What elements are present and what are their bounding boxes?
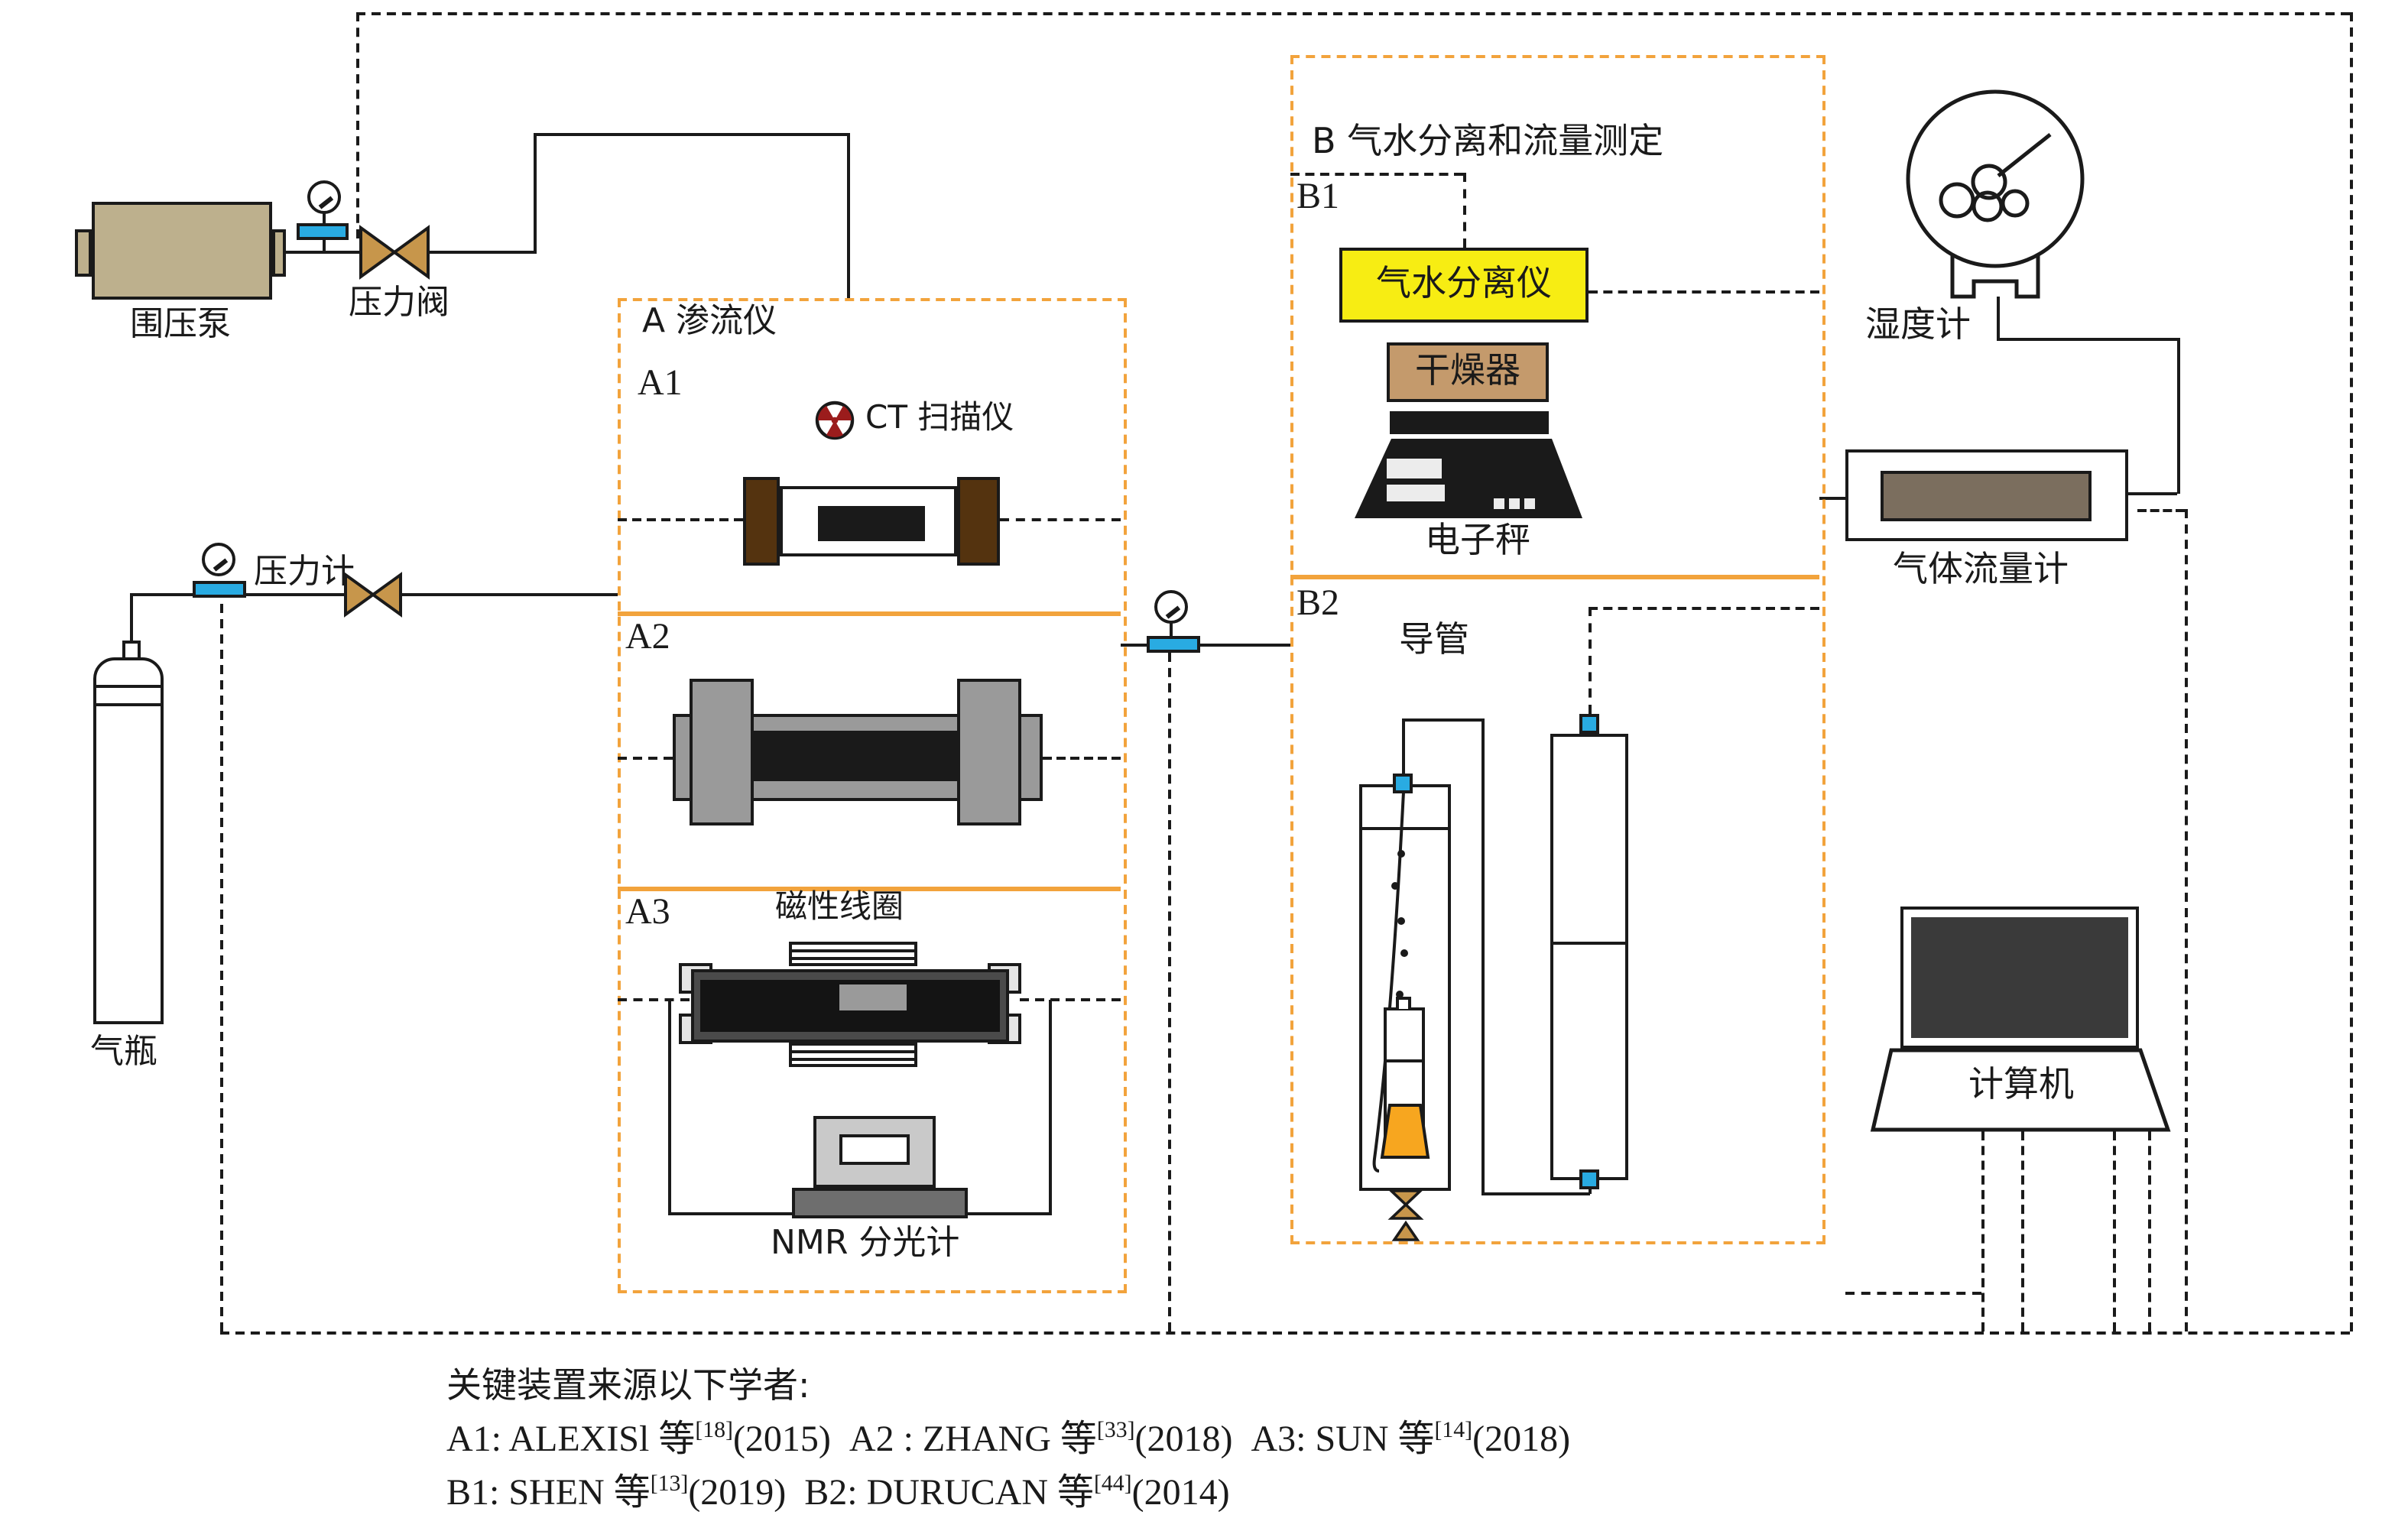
gauge-base <box>1147 636 1200 653</box>
confining-pump <box>92 202 272 300</box>
bus-spur-flowmeter <box>2185 509 2188 1331</box>
box-a-divider-1 <box>618 611 1121 615</box>
label-pressure-gauge: 压力计 <box>254 553 355 592</box>
label-a1: A1 <box>638 364 683 406</box>
pressure-gauge-icon <box>307 180 341 214</box>
drain-valve-icon <box>1388 1189 1423 1241</box>
pipe-hygro-drop <box>2177 338 2180 494</box>
a2-core-sample <box>754 731 957 781</box>
a1-centerline <box>618 518 743 521</box>
pressure-gauge-icon <box>202 543 235 576</box>
bubble <box>1391 882 1399 890</box>
a1-core-holder-cap <box>957 477 1000 566</box>
vessel-fitting <box>1579 1169 1599 1189</box>
right-vessel-level-line <box>1553 942 1625 945</box>
a3-centerline <box>1020 998 1121 1001</box>
cylinder-collar-line <box>96 703 164 706</box>
label-flow-meter: 气体流量计 <box>1893 550 2069 591</box>
label-a3: A3 <box>625 893 670 935</box>
confining-pump-tab <box>75 229 92 277</box>
credits-title: 关键装置来源以下学者: <box>446 1367 810 1407</box>
label-computer: 计算机 <box>1929 1066 2113 1106</box>
vessel-fitting <box>1393 774 1413 793</box>
computer-signal-line <box>2021 1131 2024 1331</box>
inner-collector-notch <box>1396 997 1411 1009</box>
confining-pump-tab <box>272 229 286 277</box>
a1-core-holder-cap <box>743 477 780 566</box>
label-ct-scanner: CT 扫描仪 <box>865 399 1014 436</box>
separator-box: 气水分离仪 <box>1339 248 1589 323</box>
label-a2: A2 <box>625 618 670 660</box>
funnel-icon <box>1381 1104 1430 1159</box>
bubble <box>1397 917 1405 925</box>
electronic-scale-icon <box>1353 437 1584 520</box>
a3-sample <box>839 984 907 1010</box>
label-b2: B2 <box>1296 584 1339 626</box>
gauge-base <box>297 223 349 240</box>
pipe-hygro-right <box>1997 338 2177 341</box>
right-vessel <box>1550 734 1628 1180</box>
label-magnetic-coil: 磁性线圈 <box>775 888 904 925</box>
valve-icon <box>359 226 430 278</box>
vessel-signal-line-h <box>1589 607 1819 610</box>
a3-coil-bottom <box>789 1043 917 1067</box>
scale-top-bar <box>1390 411 1549 434</box>
bus-spur-flowmeter-h <box>2137 509 2185 512</box>
gauge-stem <box>1170 622 1173 636</box>
pipe-pump-up <box>534 133 537 254</box>
pressure-gauge-icon <box>1154 590 1188 624</box>
gauge-stem <box>323 212 326 223</box>
bus-left <box>220 604 223 1331</box>
a3-coil-line <box>792 1058 914 1060</box>
b1-outline-right <box>1463 173 1466 248</box>
computer-signal-line-h <box>1845 1292 1981 1295</box>
a2-end-plate <box>957 679 1021 825</box>
inner-collector-line <box>1387 1059 1422 1062</box>
a3-coil-top <box>789 942 917 966</box>
radiation-icon <box>815 401 855 440</box>
bubble <box>1397 850 1405 858</box>
gauge-base <box>193 581 246 598</box>
bus-right <box>2350 12 2353 1331</box>
gas-cylinder <box>93 657 164 1024</box>
valve-icon <box>344 573 402 616</box>
label-hygrometer: 湿度计 <box>1865 306 1971 346</box>
pipe-cylinder-riser <box>130 595 133 641</box>
separator-signal-line <box>1589 290 1819 294</box>
a1-core-sample <box>818 506 925 541</box>
vessel-fitting <box>1579 714 1599 734</box>
a2-end-plate <box>690 679 754 825</box>
gas-flow-meter-display <box>1881 471 2092 521</box>
bus-spur-midgauge <box>1168 653 1171 1331</box>
a2-centerline <box>618 757 673 760</box>
computer-signal-line <box>2113 1131 2116 1331</box>
label-pressure-valve: 压力阀 <box>349 284 449 323</box>
a1-centerline <box>1000 518 1121 521</box>
bus-top <box>356 12 2350 15</box>
pipe-into-boxA <box>847 133 850 298</box>
computer-signal-line <box>1981 1131 1984 1331</box>
b1-outline-top <box>1290 173 1463 176</box>
box-b-title: B 气水分离和流量测定 <box>1312 122 1663 163</box>
credits-line: B1: SHEN 等[13](2019) B2: DURUCAN 等[44](2… <box>446 1472 1230 1516</box>
label-nmr: NMR 分光计 <box>771 1224 959 1263</box>
pipe-hygro-down <box>1997 297 2000 338</box>
nmr-monitor-window <box>839 1134 910 1165</box>
nmr-base <box>792 1188 968 1218</box>
label-pump: 围压泵 <box>130 306 231 345</box>
a3-coil-line <box>792 957 914 959</box>
dryer-box: 干燥器 <box>1387 342 1549 402</box>
computer-signal-line <box>2148 1131 2151 1331</box>
label-cylinder: 气瓶 <box>90 1033 157 1072</box>
cylinder-collar-line <box>96 685 164 688</box>
bus-spur-valve <box>356 12 359 238</box>
a2-centerline <box>1043 757 1121 760</box>
credits-line: A1: ALEXISl 等[18](2015) A2 : ZHANG 等[33]… <box>446 1419 1570 1462</box>
bus-bottom <box>220 1331 2350 1335</box>
bubble <box>1400 949 1408 957</box>
vessel-signal-line-v <box>1589 607 1592 714</box>
label-scale: 电子秤 <box>1425 521 1530 562</box>
computer-screen-panel <box>1911 917 2128 1038</box>
hygrometer-icon <box>1902 86 2092 300</box>
label-duct: 导管 <box>1399 621 1469 661</box>
a3-centerline <box>618 998 690 1001</box>
a3-coil-line <box>792 949 914 952</box>
pipe-hygro-to-flowmeter <box>2128 492 2177 495</box>
a3-coil-line <box>792 1050 914 1053</box>
box-a-title: A 渗流仪 <box>642 303 777 342</box>
label-b1: B1 <box>1296 177 1339 219</box>
box-b-divider <box>1290 575 1819 579</box>
diagram-stage: A 渗流仪 A1 CT 扫描仪 A2 A3 磁性线圈 NMR 分光计 B 气水分… <box>0 0 2408 1518</box>
gauge-stem <box>323 240 326 252</box>
pipe-pump-top <box>534 133 847 136</box>
